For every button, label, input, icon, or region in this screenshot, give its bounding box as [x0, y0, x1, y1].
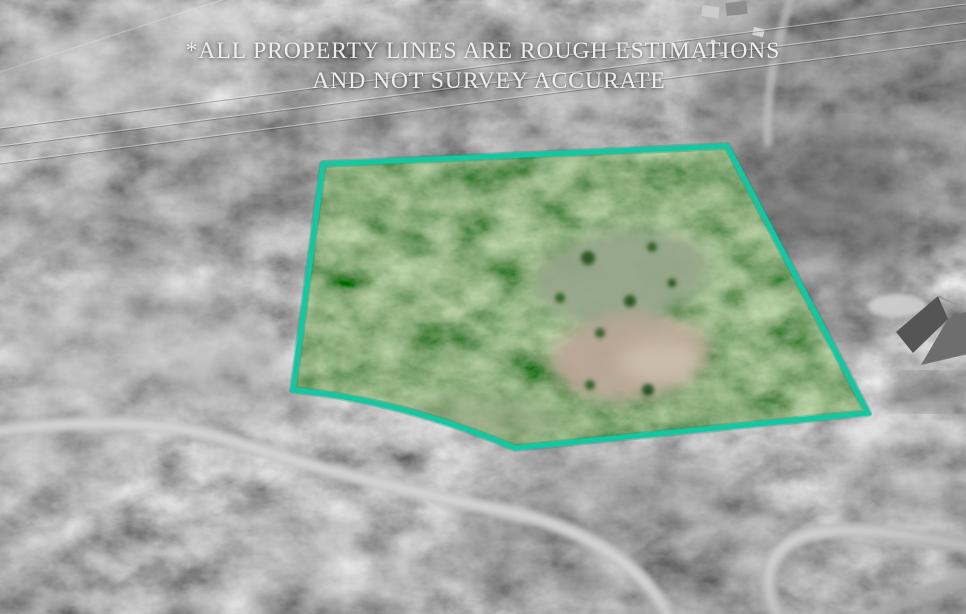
disclaimer-line-2: AND NOT SURVEY ACCURATE [312, 68, 665, 94]
scene-svg: *ALL PROPERTY LINES ARE ROUGH ESTIMATION… [0, 0, 966, 614]
aerial-photo: *ALL PROPERTY LINES ARE ROUGH ESTIMATION… [0, 0, 966, 614]
disclaimer-line-1: *ALL PROPERTY LINES ARE ROUGH ESTIMATION… [186, 38, 781, 64]
